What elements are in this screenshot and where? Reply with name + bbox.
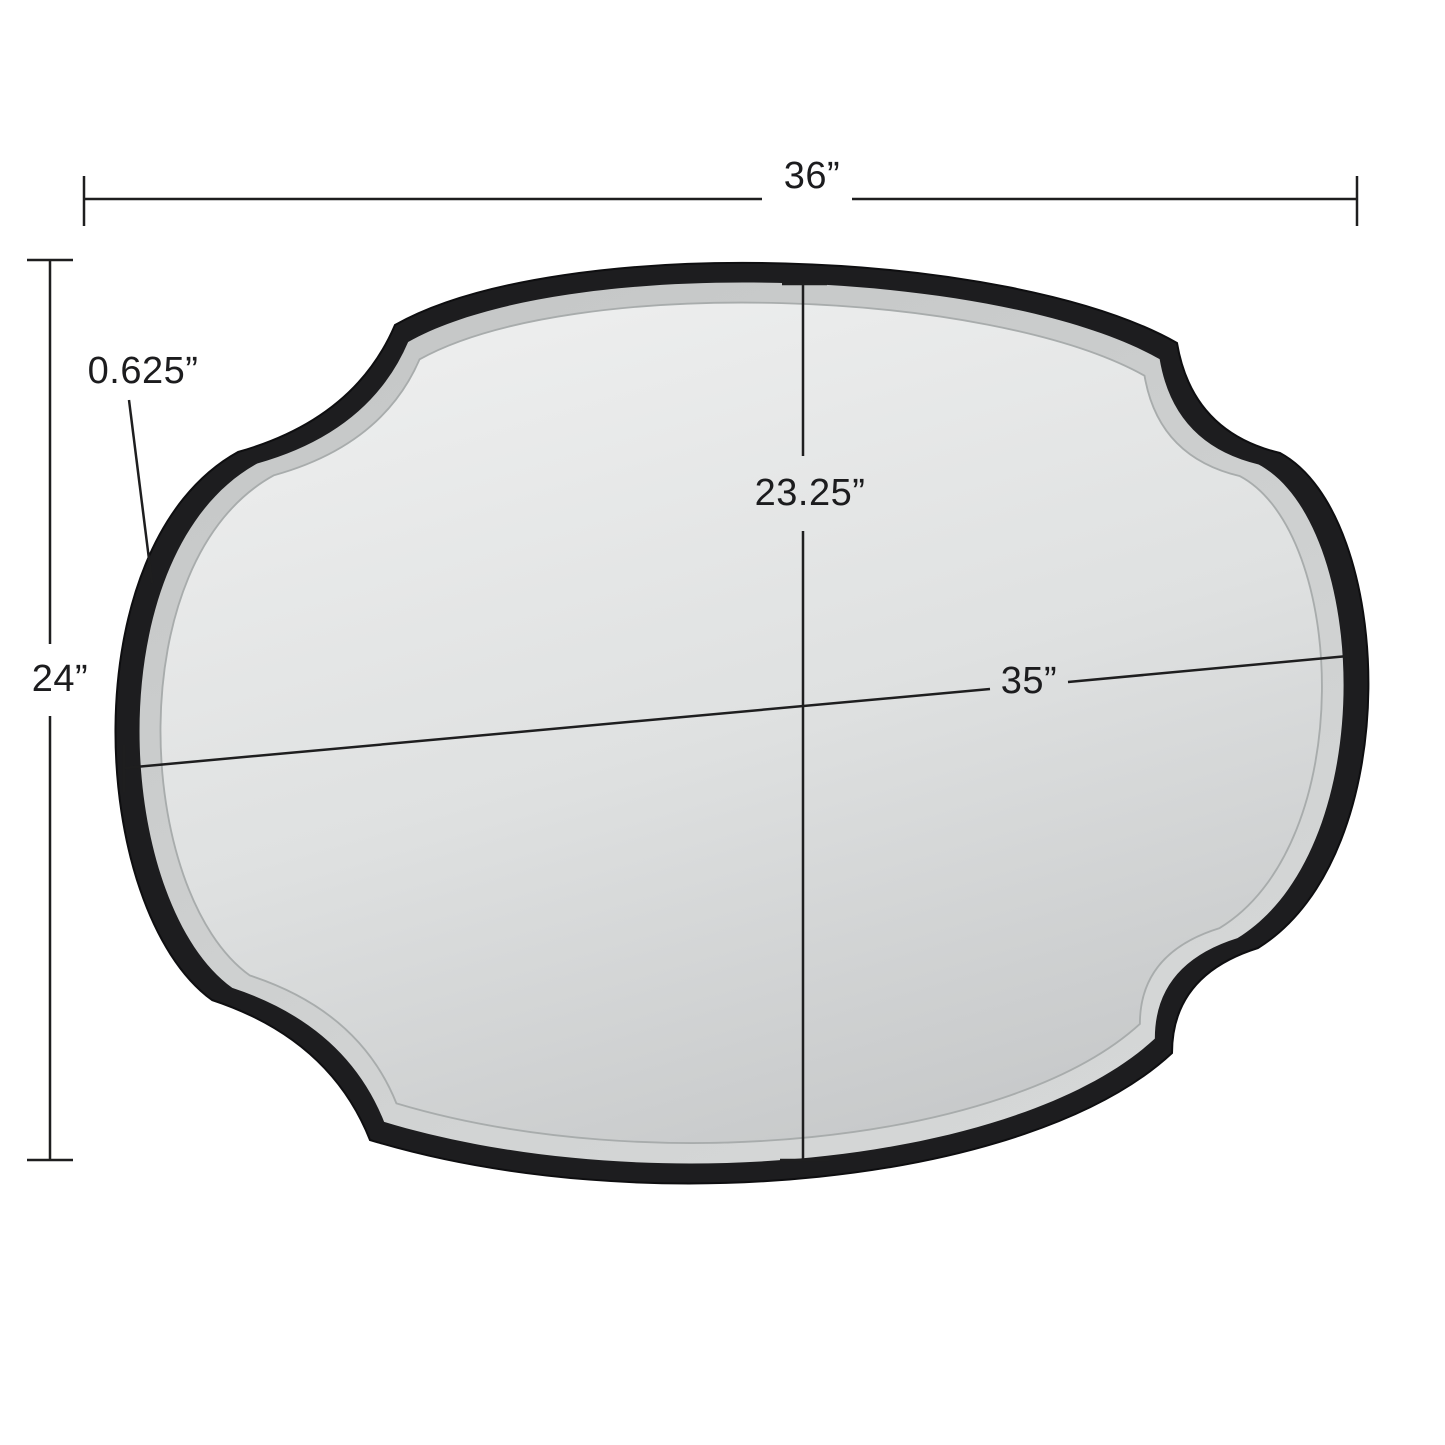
product-dimension-diagram: 36” 24” 0.625” 23.25” 35” [0,0,1445,1445]
overall-width-label: 36” [784,157,840,195]
dim-overall-height [27,260,73,1160]
mirror [115,263,1368,1183]
glass-width-label: 35” [1001,662,1057,700]
frame-width-label: 0.625” [88,352,199,390]
overall-height-label: 24” [32,660,88,698]
diagram-canvas [0,0,1445,1445]
glass-height-label: 23.25” [755,474,866,512]
dim-overall-width [84,176,1357,226]
dim-frame-width [129,400,152,583]
dim-frame-width-leader [129,400,152,583]
